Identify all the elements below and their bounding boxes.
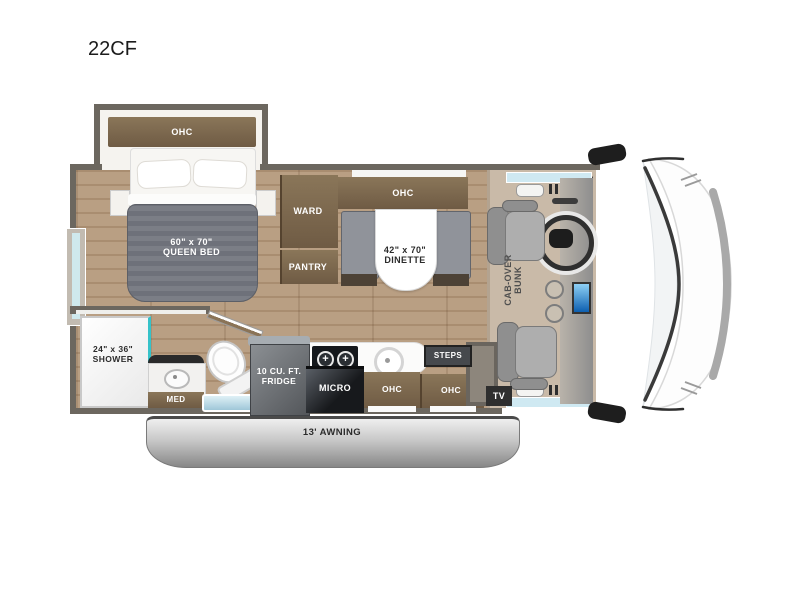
bathroom-sink — [164, 369, 190, 389]
kitchen-window-left — [368, 406, 416, 412]
mirror-bottom-icon — [587, 401, 627, 424]
entry-step-stool — [202, 394, 254, 412]
cupholder-bottom-icon — [545, 304, 564, 323]
tv-label: TV — [486, 386, 512, 406]
microwave-label: MICRO — [306, 366, 364, 410]
bathroom-wall-trim — [76, 310, 206, 314]
cupholder-top-icon — [545, 280, 564, 299]
fridge-label: 10 CU. FT. FRIDGE — [250, 362, 308, 392]
nightstand-right — [256, 190, 276, 216]
kitchen-window-right — [430, 406, 476, 412]
door-vent-top-icon — [549, 184, 552, 194]
slideout-wall-right — [262, 104, 268, 168]
dinette-bench-left — [341, 211, 379, 279]
awning-label: 13' AWNING — [146, 426, 518, 440]
slideout-wall-left — [94, 104, 100, 168]
driver-seat-armrest — [502, 200, 538, 212]
cab-over-bunk-line1: CAB-OVER — [503, 254, 513, 305]
pillow-right — [192, 159, 247, 190]
queen-bed-name: QUEEN BED — [163, 247, 220, 257]
awning — [146, 416, 520, 468]
pantry-label: PANTRY — [280, 250, 336, 284]
dinette-window-sill — [352, 170, 466, 177]
cab-over-bunk-label: CAB-OVER BUNK — [495, 235, 531, 325]
slideout-wall-top — [94, 104, 268, 110]
model-title: 22CF — [88, 38, 137, 61]
door-vent-bottom-icon — [549, 385, 552, 395]
steps-label: STEPS — [424, 345, 472, 367]
cab-over-bunk-line2: BUNK — [513, 266, 523, 294]
dinette-name: DINETTE — [384, 255, 425, 265]
shower-label: 24" x 36" SHOWER — [80, 340, 146, 370]
passenger-seat — [515, 326, 557, 378]
floorplan-canvas: 22CF OHC 60" x 70" QUEEN BED WARD PANTRY… — [0, 0, 800, 600]
dash-vent-icon — [552, 198, 578, 204]
passenger-seat-armrest — [510, 378, 548, 390]
door-vent-bottom2-icon — [555, 385, 558, 395]
bedroom-ohc-label: OHC — [108, 117, 256, 147]
fridge-label-line2: FRIDGE — [262, 377, 297, 387]
dinette-dim: 42" x 70" — [384, 245, 426, 255]
dinette-table-label: 42" x 70" DINETTE — [375, 238, 435, 272]
steering-hub — [549, 229, 573, 248]
door-vent-top2-icon — [555, 184, 558, 194]
kitchen-ohc-left-label: OHC — [364, 372, 420, 408]
mirror-top-icon — [587, 143, 627, 166]
wardrobe-label: WARD — [280, 175, 336, 248]
bathroom-sink-drain — [173, 375, 177, 379]
front-cap — [585, 128, 790, 440]
dinette-ohc-label: OHC — [338, 177, 468, 209]
dinette-bench-right — [433, 211, 471, 279]
pillow-left — [136, 159, 191, 190]
kitchen-sink-drain — [385, 358, 390, 363]
queen-bed-dim: 60" x 70" — [170, 237, 212, 247]
shower-name: SHOWER — [93, 355, 134, 365]
dinette-bench-base-left — [341, 274, 377, 286]
cab-door-handle-top — [516, 184, 544, 197]
queen-bed-label: 60" x 70" QUEEN BED — [127, 232, 256, 262]
dinette-bench-base-right — [433, 274, 469, 286]
med-cabinet-label: MED — [148, 392, 204, 408]
